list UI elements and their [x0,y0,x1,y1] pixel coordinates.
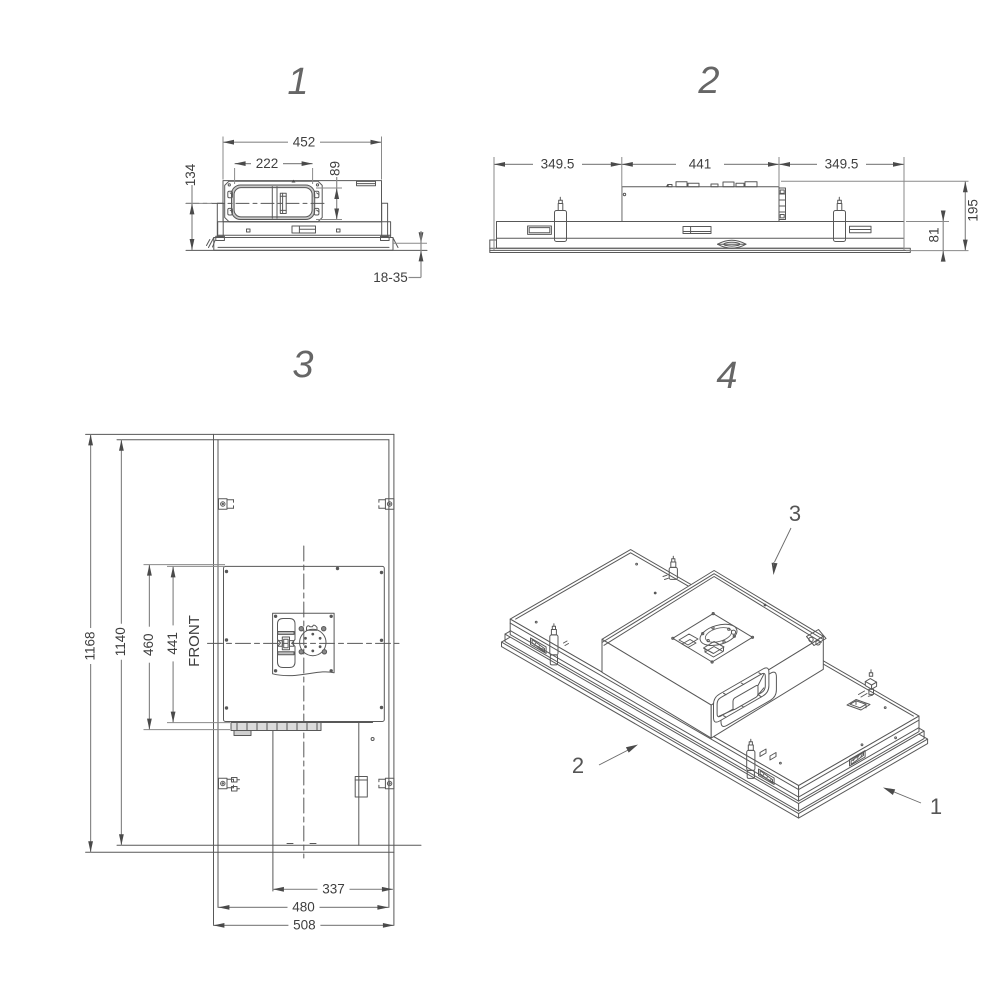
svg-text:2: 2 [572,753,584,778]
svg-text:195: 195 [966,199,981,222]
svg-text:3: 3 [789,501,801,526]
svg-text:452: 452 [293,135,316,150]
svg-text:222: 222 [256,156,279,171]
svg-text:1: 1 [287,61,308,103]
svg-text:18-35: 18-35 [373,270,408,285]
svg-text:508: 508 [293,918,316,933]
svg-text:3: 3 [292,344,313,386]
svg-text:2: 2 [697,60,719,102]
svg-text:FRONT: FRONT [186,615,203,667]
svg-text:1140: 1140 [113,627,128,656]
svg-text:349.5: 349.5 [541,157,575,172]
svg-text:337: 337 [322,882,345,897]
svg-text:81: 81 [927,227,942,242]
svg-text:349.5: 349.5 [825,157,859,172]
svg-text:460: 460 [141,633,156,656]
svg-text:134: 134 [183,163,198,186]
svg-text:480: 480 [292,900,315,915]
svg-text:441: 441 [689,157,712,172]
svg-text:441: 441 [165,632,180,655]
svg-text:89: 89 [328,161,343,176]
svg-text:4: 4 [716,355,737,397]
svg-text:1168: 1168 [82,631,97,660]
svg-text:1: 1 [930,794,942,819]
